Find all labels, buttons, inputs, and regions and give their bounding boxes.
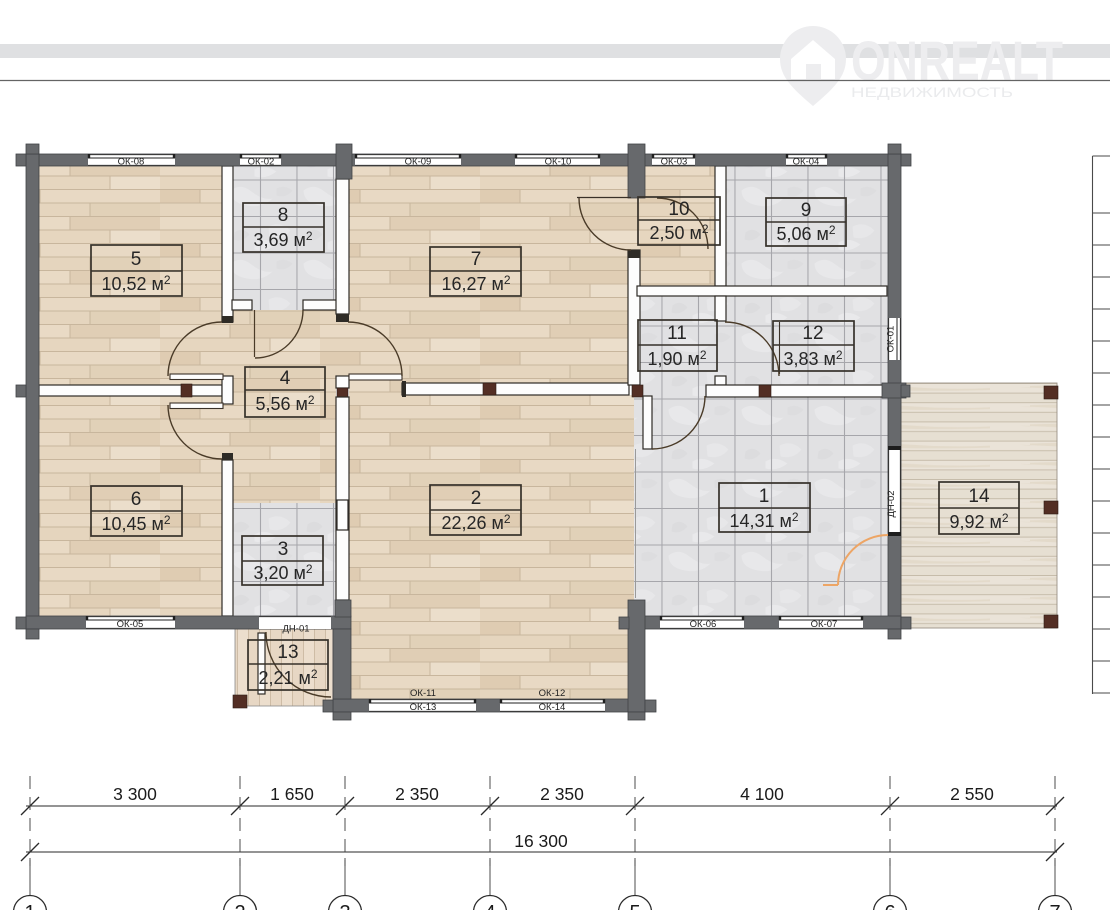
svg-text:6: 6 [131, 489, 142, 510]
svg-text:ОК-13: ОК-13 [410, 702, 437, 713]
svg-text:1: 1 [759, 486, 770, 507]
svg-text:7: 7 [1049, 902, 1060, 910]
svg-text:4: 4 [484, 902, 495, 910]
svg-text:9,92 м2: 9,92 м2 [949, 511, 1008, 532]
svg-text:4 100: 4 100 [740, 784, 784, 804]
svg-text:3,83 м2: 3,83 м2 [783, 348, 842, 369]
svg-text:ДН-01: ДН-01 [282, 624, 309, 635]
svg-text:ОК-12: ОК-12 [539, 688, 566, 699]
svg-text:ОК-01: ОК-01 [886, 326, 897, 353]
svg-text:22,26 м2: 22,26 м2 [441, 512, 510, 533]
svg-text:3,69 м2: 3,69 м2 [253, 229, 312, 250]
svg-text:5: 5 [629, 902, 640, 910]
svg-text:2 350: 2 350 [395, 784, 439, 804]
svg-text:14: 14 [968, 486, 990, 507]
svg-text:1,90 м2: 1,90 м2 [647, 348, 706, 369]
svg-text:ОК-02: ОК-02 [248, 157, 275, 168]
svg-text:ОК-10: ОК-10 [545, 157, 572, 168]
svg-text:3,20 м2: 3,20 м2 [253, 562, 312, 583]
svg-text:9: 9 [801, 200, 812, 221]
svg-text:ОК-11: ОК-11 [410, 688, 436, 699]
svg-text:ОК-14: ОК-14 [539, 702, 566, 713]
svg-text:10,52 м2: 10,52 м2 [101, 273, 170, 294]
svg-text:2,21 м2: 2,21 м2 [258, 667, 317, 688]
svg-text:ОК-03: ОК-03 [661, 157, 688, 168]
svg-text:16 300: 16 300 [514, 831, 568, 851]
svg-text:5,56 м2: 5,56 м2 [255, 393, 314, 414]
svg-text:6: 6 [884, 902, 895, 910]
svg-text:ОК-04: ОК-04 [793, 157, 820, 168]
svg-text:ОК-09: ОК-09 [405, 157, 432, 168]
svg-text:ДН-02: ДН-02 [886, 490, 897, 517]
svg-text:2,50 м2: 2,50 м2 [649, 222, 708, 243]
svg-text:2: 2 [234, 902, 245, 910]
svg-text:ОК-06: ОК-06 [690, 619, 717, 630]
svg-text:7: 7 [471, 249, 482, 270]
svg-text:4: 4 [280, 368, 291, 389]
svg-text:3: 3 [339, 902, 350, 910]
svg-text:2 550: 2 550 [950, 784, 994, 804]
svg-text:ОК-05: ОК-05 [117, 619, 144, 630]
svg-text:ОК-07: ОК-07 [811, 619, 838, 630]
svg-text:2: 2 [471, 488, 482, 509]
svg-text:5: 5 [131, 249, 142, 270]
svg-text:10: 10 [668, 199, 689, 220]
svg-text:5,06 м2: 5,06 м2 [776, 223, 835, 244]
svg-text:3 300: 3 300 [113, 784, 157, 804]
svg-text:2 350: 2 350 [540, 784, 584, 804]
svg-text:НЕДВИЖИМОСТЬ: НЕДВИЖИМОСТЬ [851, 84, 1013, 100]
svg-text:1: 1 [24, 902, 35, 910]
svg-text:11: 11 [667, 323, 687, 344]
svg-text:16,27 м2: 16,27 м2 [441, 273, 510, 294]
svg-text:12: 12 [802, 323, 823, 344]
svg-text:10,45 м2: 10,45 м2 [101, 513, 170, 534]
svg-text:14,31 м2: 14,31 м2 [729, 510, 798, 531]
svg-text:3: 3 [278, 539, 289, 560]
svg-text:ОК-08: ОК-08 [118, 157, 145, 168]
svg-text:8: 8 [278, 205, 289, 226]
svg-text:1 650: 1 650 [270, 784, 314, 804]
svg-text:ONREALT: ONREALT [851, 29, 1063, 92]
svg-text:13: 13 [277, 642, 298, 663]
